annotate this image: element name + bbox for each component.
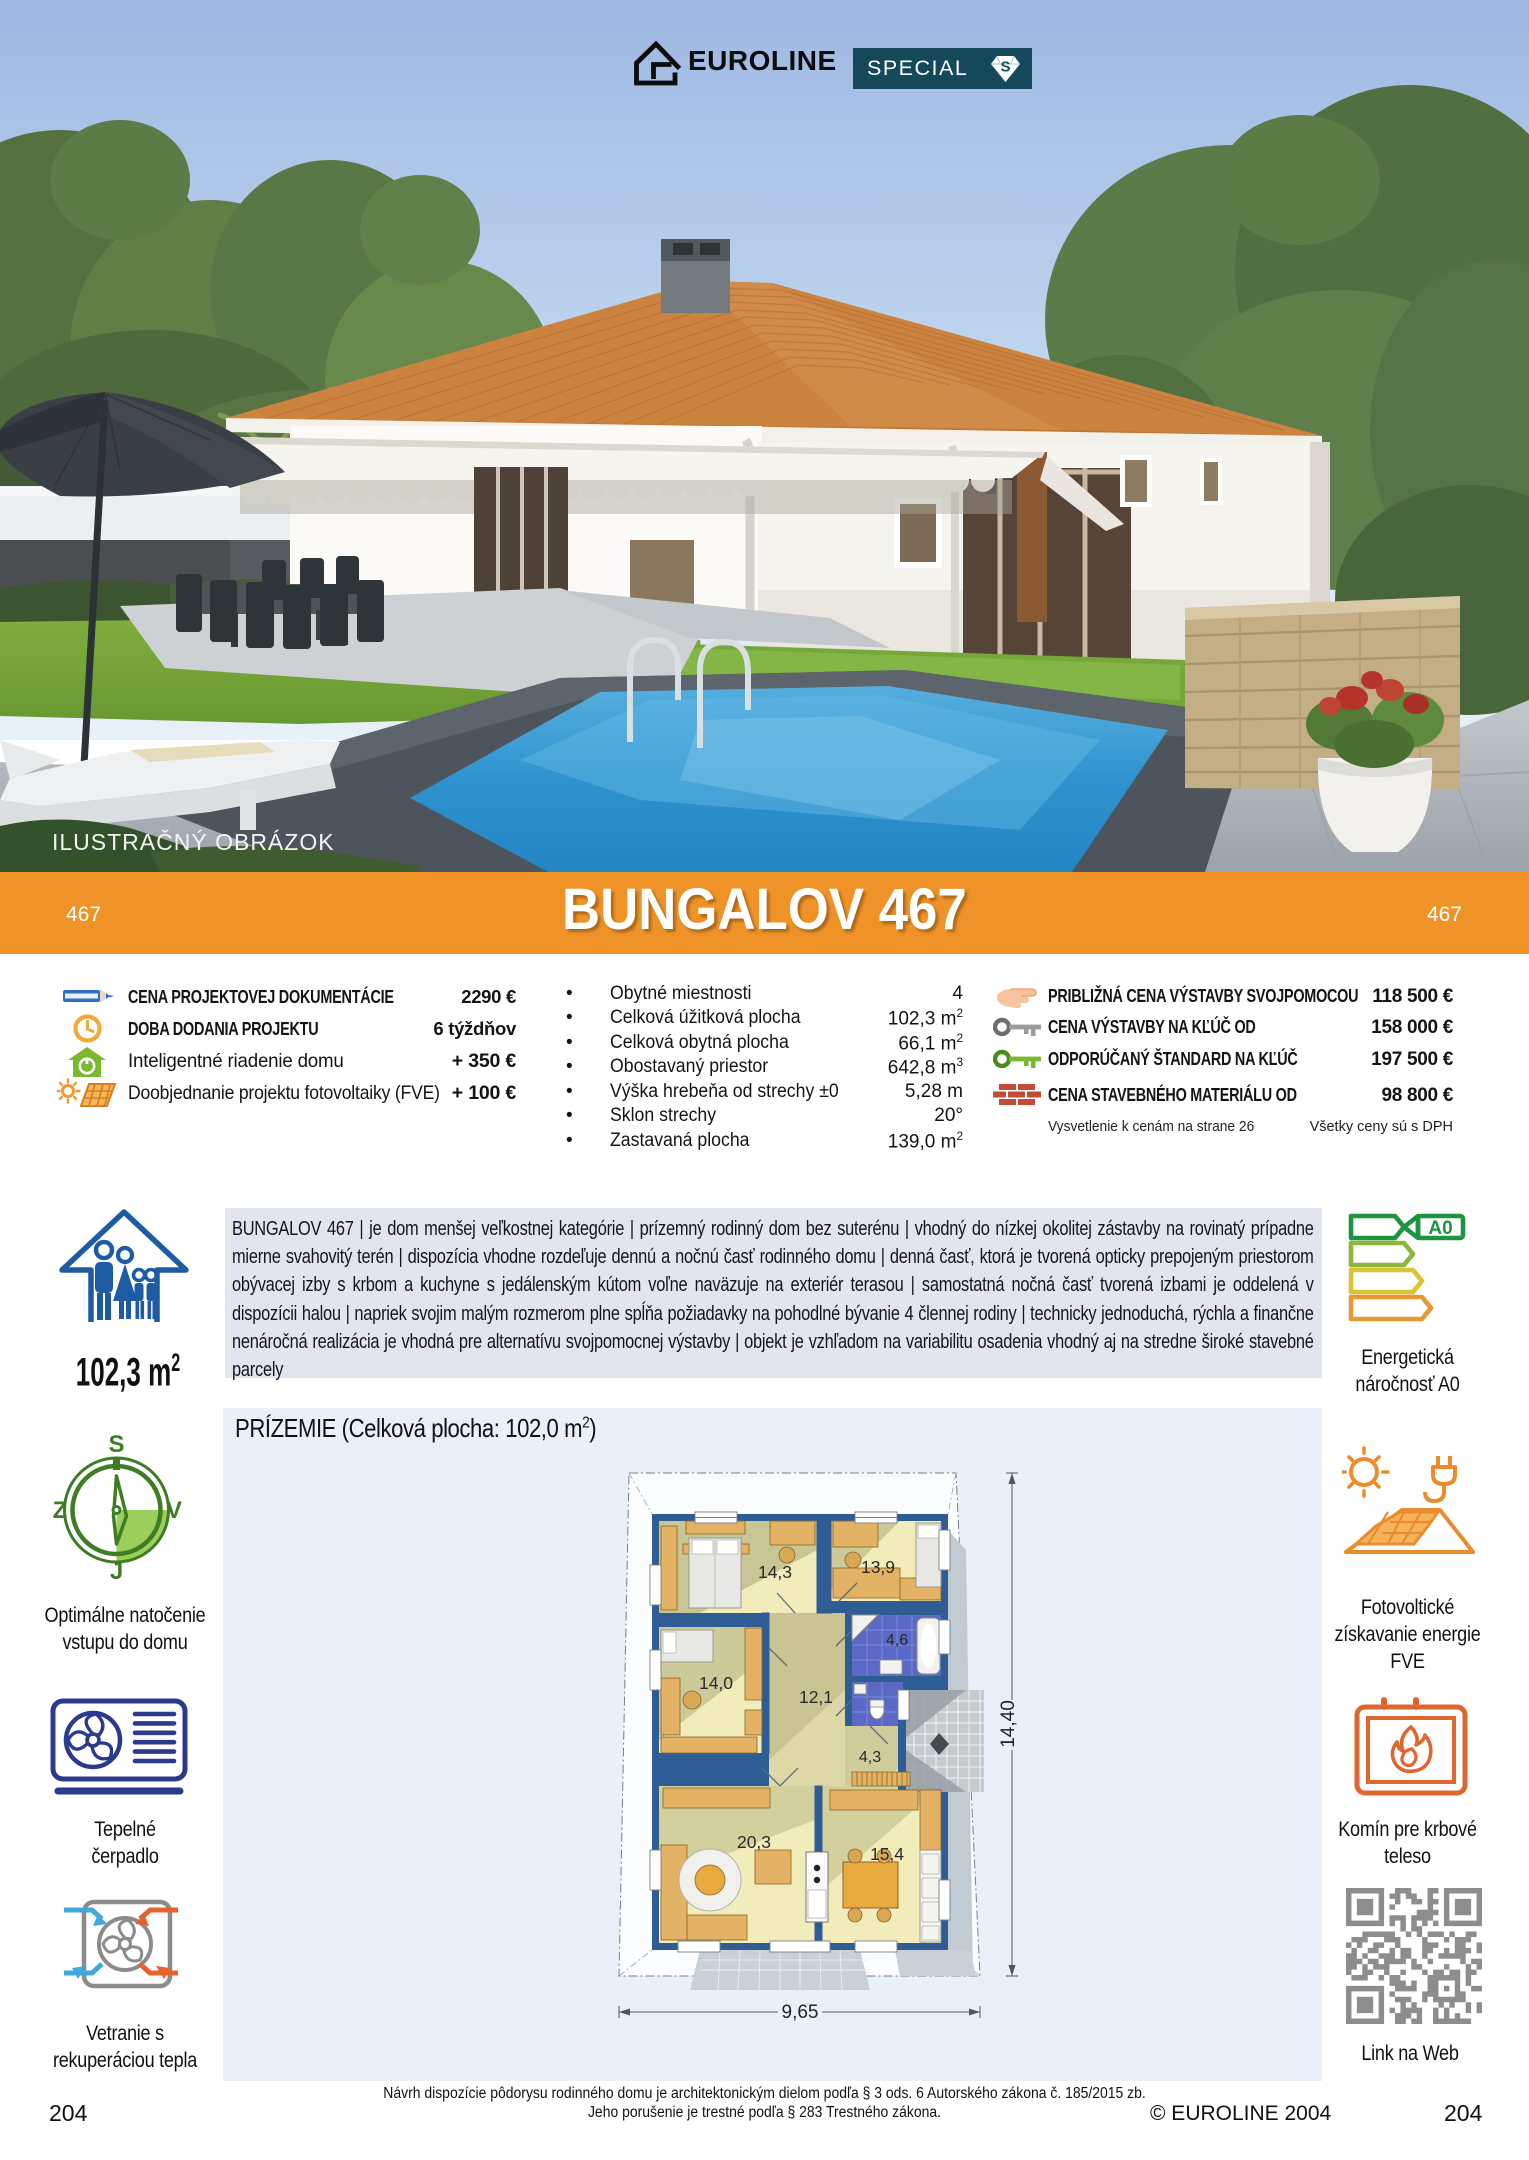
svg-text:13,9: 13,9 [861, 1557, 895, 1577]
svg-text:14,0: 14,0 [699, 1673, 733, 1693]
svg-text:S: S [1000, 59, 1010, 76]
svg-text:14,3: 14,3 [758, 1562, 792, 1582]
svg-text:Z: Z [53, 1497, 68, 1524]
svg-text:4,3: 4,3 [859, 1749, 881, 1766]
svg-text:J: J [110, 1558, 123, 1581]
svg-text:9,65: 9,65 [782, 2002, 819, 2023]
svg-text:S: S [108, 1433, 124, 1458]
svg-text:14,40: 14,40 [998, 1700, 1019, 1748]
svg-text:15,4: 15,4 [870, 1844, 904, 1864]
svg-text:ILUSTRAČNÝ OBRÁZOK: ILUSTRAČNÝ OBRÁZOK [52, 828, 335, 855]
svg-text:A0: A0 [1428, 1218, 1452, 1239]
svg-text:20,3: 20,3 [737, 1832, 771, 1852]
svg-text:12,1: 12,1 [799, 1687, 833, 1707]
svg-text:V: V [166, 1497, 182, 1524]
svg-text:4,6: 4,6 [886, 1632, 908, 1649]
